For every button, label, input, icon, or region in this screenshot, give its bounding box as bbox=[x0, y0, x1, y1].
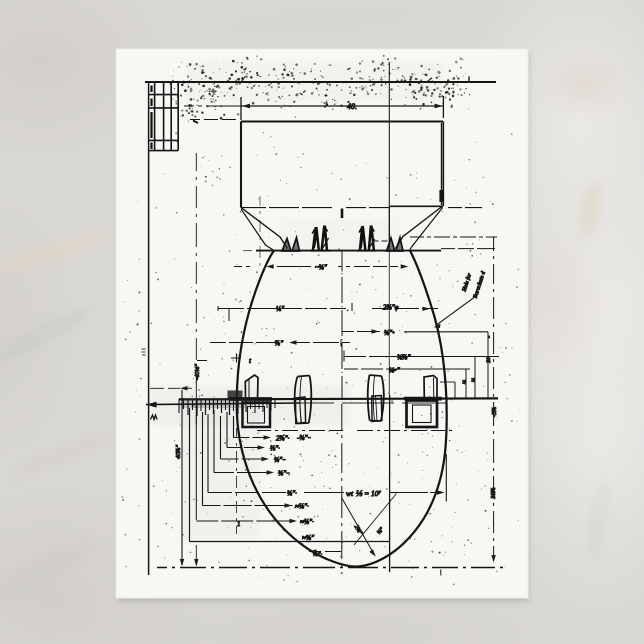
svg-text:40⅞″: 40⅞″ bbox=[175, 445, 182, 459]
svg-text:⅜″·: ⅜″· bbox=[313, 551, 323, 558]
svg-text:~⅜″: ~⅜″ bbox=[315, 264, 327, 272]
svg-text:2⅞″·: 2⅞″· bbox=[276, 435, 290, 443]
svg-text:⅜″·: ⅜″· bbox=[287, 490, 297, 498]
svg-text:⅛: ⅛ bbox=[471, 378, 477, 382]
svg-text:⅜″··: ⅜″·· bbox=[278, 470, 290, 478]
svg-text:⅛: ⅛ bbox=[462, 380, 468, 384]
svg-text:⅛″: ⅛″ bbox=[276, 305, 284, 313]
svg-text:≈⅜″: ≈⅜″ bbox=[302, 534, 314, 542]
svg-text:≈⅝″·: ≈⅝″· bbox=[295, 503, 309, 511]
svg-text:-3⅞: -3⅞ bbox=[491, 407, 498, 417]
svg-text:⅛•″: ⅛•″ bbox=[389, 367, 400, 375]
svg-text:-⅜″··: -⅜″·· bbox=[297, 434, 311, 442]
svg-text:2⅜″φ: 2⅜″φ bbox=[383, 304, 399, 312]
svg-text:40.: 40. bbox=[347, 102, 357, 111]
svg-text:⅜″•: ⅜″• bbox=[384, 329, 395, 337]
svg-text:≈⅝″·: ≈⅝″· bbox=[300, 518, 314, 526]
svg-text:-40⅛″: -40⅛″ bbox=[194, 364, 201, 381]
svg-text:⅔″·: ⅔″· bbox=[270, 445, 280, 453]
svg-text:⅜″··: ⅜″·· bbox=[274, 456, 286, 464]
svg-text:⅞″: ⅞″ bbox=[275, 340, 283, 348]
svg-text:38⅞: 38⅞ bbox=[490, 487, 497, 500]
svg-text:20: 20 bbox=[486, 357, 492, 363]
svg-text:wt ⅕ = 10⁷: wt ⅕ = 10⁷ bbox=[346, 489, 382, 498]
